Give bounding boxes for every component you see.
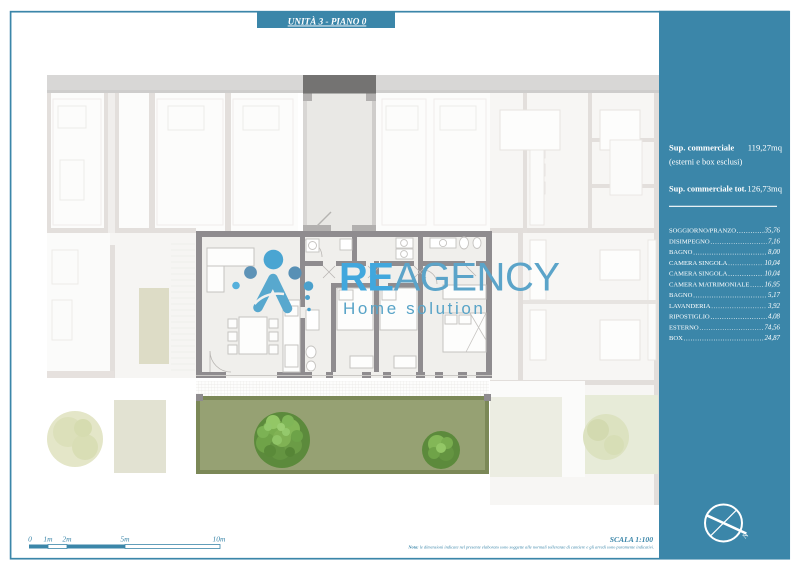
svg-text:REAGENCY: REAGENCY [339,256,560,300]
svg-text:35,76: 35,76 [763,228,780,235]
svg-text:74,56: 74,56 [764,324,780,331]
svg-text:5m: 5m [120,535,130,544]
svg-text:CAMERA SINGOLA: CAMERA SINGOLA [669,260,728,267]
svg-text:Home solution: Home solution [343,299,485,318]
svg-text:10m: 10m [213,535,227,544]
svg-text:CAMERA SINGOLA: CAMERA SINGOLA [669,271,728,278]
svg-text:SOGGIORNO/PRANZO: SOGGIORNO/PRANZO [669,228,736,235]
svg-text:CAMERA MATRIMONIALE: CAMERA MATRIMONIALE [669,281,749,288]
svg-text:126,73mq: 126,73mq [747,184,782,194]
svg-text:DISIMPEGNO: DISIMPEGNO [669,238,710,245]
svg-text:ESTERNO: ESTERNO [669,324,699,331]
svg-text:BAGNO: BAGNO [669,292,693,299]
svg-text:7,16: 7,16 [768,238,781,245]
svg-text:1m: 1m [43,535,53,544]
svg-text:4,08: 4,08 [768,314,781,321]
svg-text:Sup. commerciale: Sup. commerciale [669,143,734,153]
svg-text:3,92: 3,92 [767,303,781,310]
svg-text:BOX: BOX [669,335,683,342]
svg-text:(esterni e box esclusi): (esterni e box esclusi) [669,158,742,167]
svg-text:Sup. commerciale tot.: Sup. commerciale tot. [669,185,747,194]
svg-text:10,04: 10,04 [764,260,780,267]
svg-text:2m: 2m [62,535,72,544]
svg-text:UNITÀ 3 - PIANO 0: UNITÀ 3 - PIANO 0 [288,17,367,27]
svg-text:BAGNO: BAGNO [669,249,693,256]
svg-text:LAVANDERIA: LAVANDERIA [669,303,711,310]
svg-text:10,04: 10,04 [764,271,780,278]
svg-text:0: 0 [28,535,32,544]
svg-text:8,00: 8,00 [768,249,781,256]
svg-text:RIPOSTIGLIO: RIPOSTIGLIO [669,314,710,321]
svg-text:16,95: 16,95 [764,281,780,288]
svg-text:119,27mq: 119,27mq [748,143,783,153]
svg-text:24,87: 24,87 [764,335,780,342]
svg-text:5,17: 5,17 [768,292,781,299]
svg-text:Nota: le dimensioni indicate n: Nota: le dimensioni indicate nel present… [407,545,654,550]
svg-text:SCALA 1:100: SCALA 1:100 [610,535,653,544]
